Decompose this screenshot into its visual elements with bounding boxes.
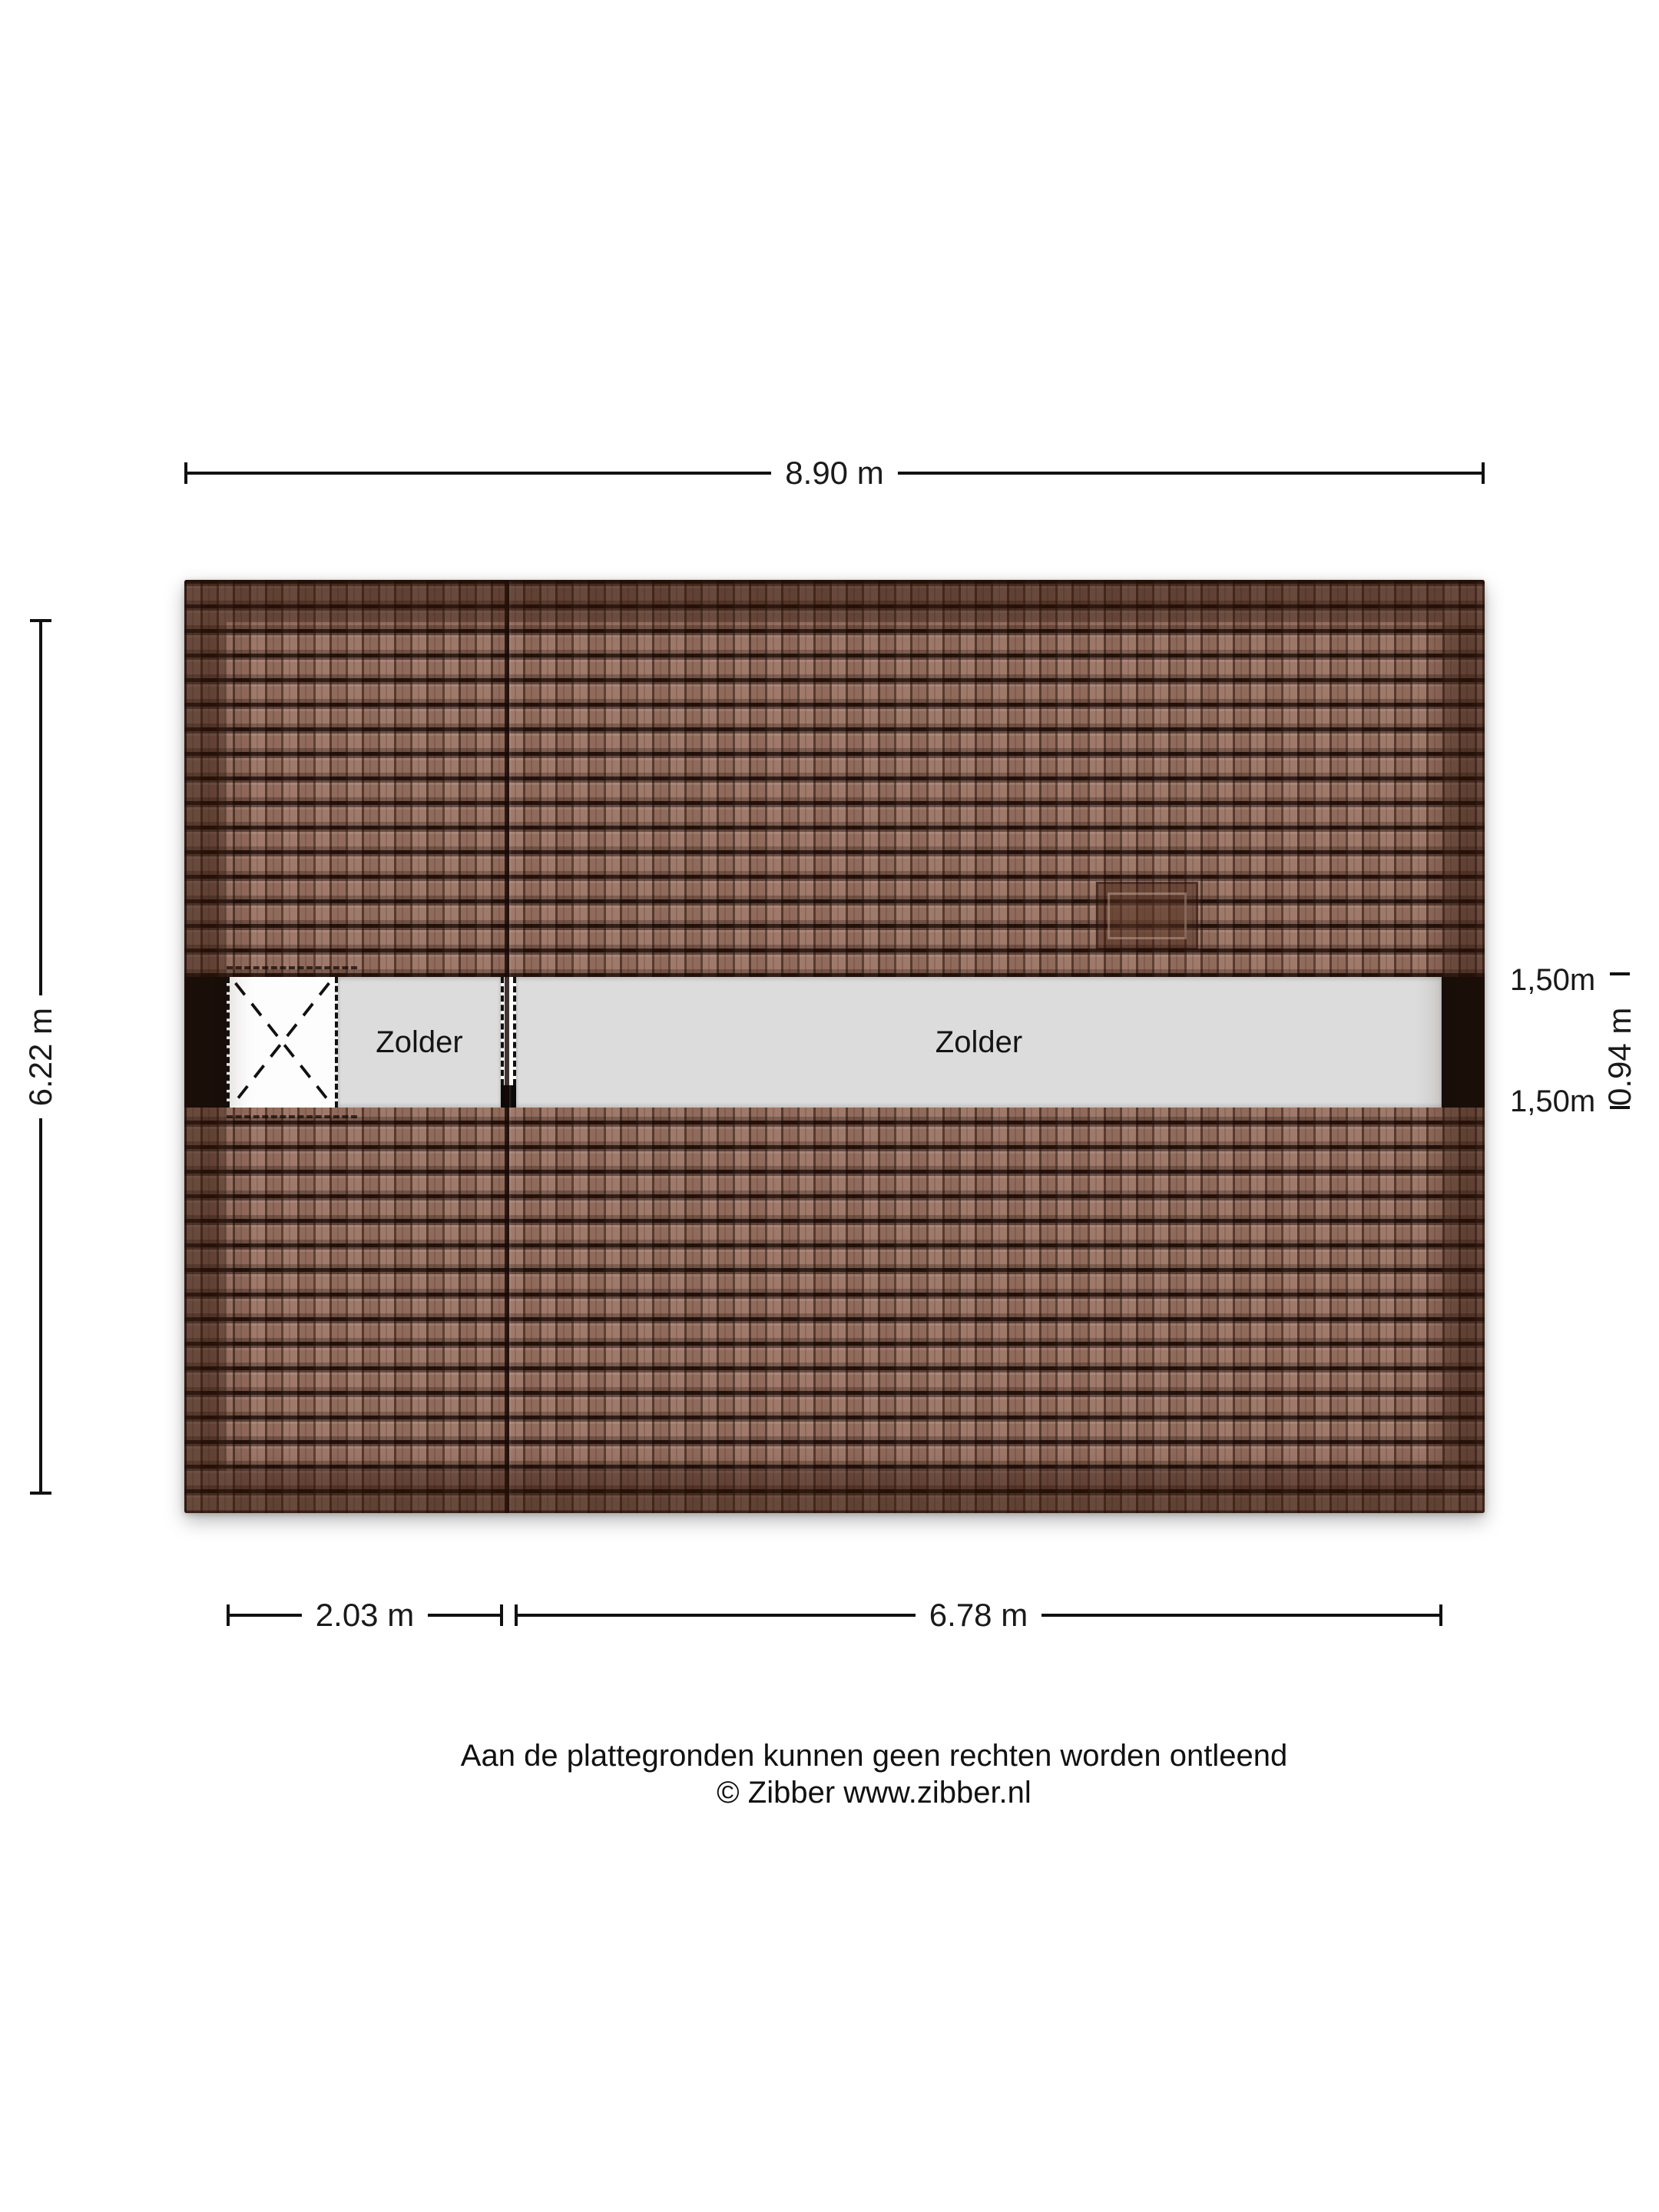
footer-copyright: © Zibber www.zibber.nl [45,1774,1659,1811]
room-zolder-small: Zolder [338,977,501,1108]
dimension-line [428,1614,500,1617]
dimension-tick [1610,1106,1630,1109]
room-label: Zolder [338,977,501,1108]
dimension-tick [30,1492,51,1495]
dimension-tick [1439,1604,1442,1626]
stair-cross-icon [230,977,335,1108]
wall-left [184,977,227,1108]
skylight-frame [1108,892,1187,939]
room-label: Zolder [516,977,1442,1108]
roof-seam-line [505,580,509,1513]
wall-right [1442,977,1485,1108]
right-upper-height-label: 1,50m [1510,963,1595,998]
dimension-line [898,472,1482,475]
roof-plan: Zolder Zolder [184,580,1485,1513]
footer: Aan de plattegronden kunnen geen rechten… [45,1737,1659,1811]
dimension-right-middle-label: 0.94 m [1607,975,1633,1106]
dimension-tick [500,1604,503,1626]
stairwell-dashed-line-bottom [227,1115,357,1118]
dimension-line [187,472,771,475]
stairwell-void [227,977,338,1108]
dimension-top-width-label: 8.90 m [771,462,897,485]
footer-disclaimer: Aan de plattegronden kunnen geen rechten… [45,1737,1659,1774]
dimension-line [230,1614,302,1617]
dimension-left-depth-label: 6.22 m [29,995,52,1118]
dimension-bottom-left-label: 2.03 m [302,1604,428,1627]
dimension-line [518,1614,916,1617]
dimension-bottom-left: 2.03 m [227,1604,503,1627]
dimension-right-middle: 0.94 m [1607,972,1633,1109]
attic-floor-band: Zolder Zolder [184,977,1485,1108]
dimension-line [39,1118,42,1492]
dimension-left-depth: 6.22 m [29,619,52,1495]
skylight [1096,882,1198,950]
dimension-tick [1482,462,1485,484]
dimension-bottom-right: 6.78 m [515,1604,1442,1627]
dimension-bottom-right-label: 6.78 m [916,1604,1041,1627]
stairwell-dashed-line-top [227,966,357,969]
right-lower-height-label: 1,50m [1510,1084,1595,1119]
dimension-line [39,622,42,995]
dimension-top-width: 8.90 m [184,462,1485,485]
dimension-line [1041,1614,1439,1617]
room-zolder-large: Zolder [516,977,1442,1108]
